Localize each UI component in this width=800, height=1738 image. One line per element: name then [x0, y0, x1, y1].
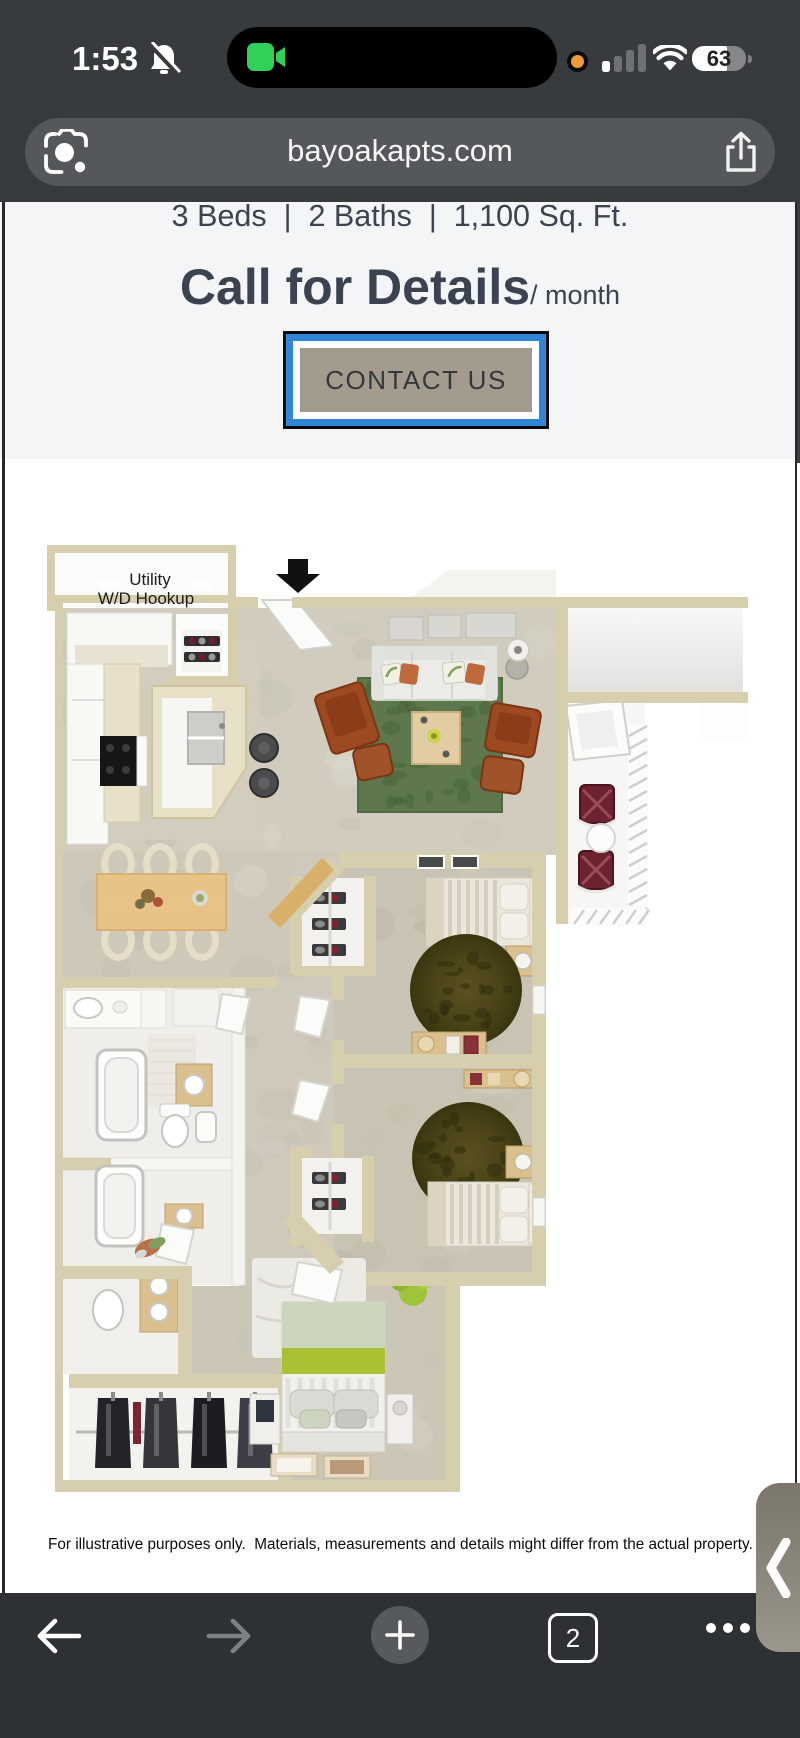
svg-text:Utility: Utility: [129, 570, 171, 589]
svg-text:W/D Hookup: W/D Hookup: [98, 589, 194, 608]
